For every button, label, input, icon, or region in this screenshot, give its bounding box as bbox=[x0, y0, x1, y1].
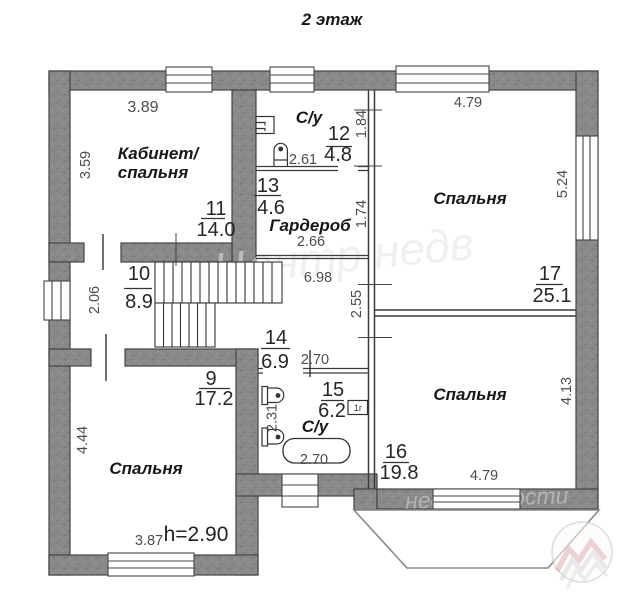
svg-text:Спальня: Спальня bbox=[109, 459, 182, 478]
svg-text:С/у: С/у bbox=[302, 417, 330, 436]
svg-text:4.13: 4.13 bbox=[559, 377, 575, 405]
svg-text:4.8: 4.8 bbox=[324, 144, 352, 166]
svg-text:спальня: спальня bbox=[118, 163, 188, 182]
svg-text:2.70: 2.70 bbox=[301, 352, 329, 368]
svg-text:2 этаж: 2 этаж bbox=[301, 10, 364, 29]
svg-text:1г: 1г bbox=[354, 403, 363, 413]
svg-text:25.1: 25.1 bbox=[533, 285, 572, 307]
svg-text:1.84: 1.84 bbox=[354, 110, 370, 138]
svg-text:2.06: 2.06 bbox=[87, 286, 103, 314]
svg-text:17.2: 17.2 bbox=[195, 388, 234, 410]
svg-text:Спальня: Спальня bbox=[433, 385, 506, 404]
svg-text:8.9: 8.9 bbox=[125, 291, 153, 313]
svg-text:4.79: 4.79 bbox=[470, 468, 498, 484]
svg-text:11: 11 bbox=[206, 198, 227, 220]
svg-text:16: 16 bbox=[385, 441, 407, 463]
svg-text:Спальня: Спальня bbox=[433, 189, 506, 208]
svg-text:3.87: 3.87 bbox=[135, 533, 163, 549]
svg-text:14: 14 bbox=[265, 327, 287, 349]
svg-text:3.89: 3.89 bbox=[127, 99, 158, 116]
svg-text:9: 9 bbox=[205, 368, 216, 390]
svg-text:2.61: 2.61 bbox=[289, 152, 317, 168]
svg-text:2.66: 2.66 bbox=[297, 234, 325, 250]
svg-text:4.44: 4.44 bbox=[75, 426, 91, 454]
svg-text:19.8: 19.8 bbox=[380, 462, 419, 484]
svg-text:10: 10 bbox=[128, 263, 150, 285]
svg-text:3.59: 3.59 bbox=[78, 151, 94, 179]
svg-text:2.55: 2.55 bbox=[349, 290, 365, 318]
svg-text:h=2.90: h=2.90 bbox=[164, 523, 229, 546]
svg-text:6.98: 6.98 bbox=[304, 270, 332, 286]
svg-text:2.70: 2.70 bbox=[300, 452, 328, 468]
svg-text:15: 15 bbox=[322, 379, 344, 401]
svg-text:13: 13 bbox=[257, 175, 279, 197]
svg-text:Кабинет/: Кабинет/ bbox=[118, 144, 201, 163]
svg-text:12: 12 bbox=[328, 123, 350, 145]
svg-text:Гардероб: Гардероб bbox=[269, 216, 351, 235]
svg-text:6.9: 6.9 bbox=[261, 351, 289, 373]
svg-text:С/у: С/у bbox=[296, 108, 324, 127]
svg-text:17: 17 bbox=[539, 263, 561, 285]
svg-text:14.0: 14.0 bbox=[197, 219, 236, 241]
svg-text:5.24: 5.24 bbox=[555, 170, 571, 198]
svg-text:1.74: 1.74 bbox=[354, 200, 370, 228]
svg-text:4.79: 4.79 bbox=[454, 95, 482, 111]
svg-text:2.31: 2.31 bbox=[265, 404, 281, 432]
